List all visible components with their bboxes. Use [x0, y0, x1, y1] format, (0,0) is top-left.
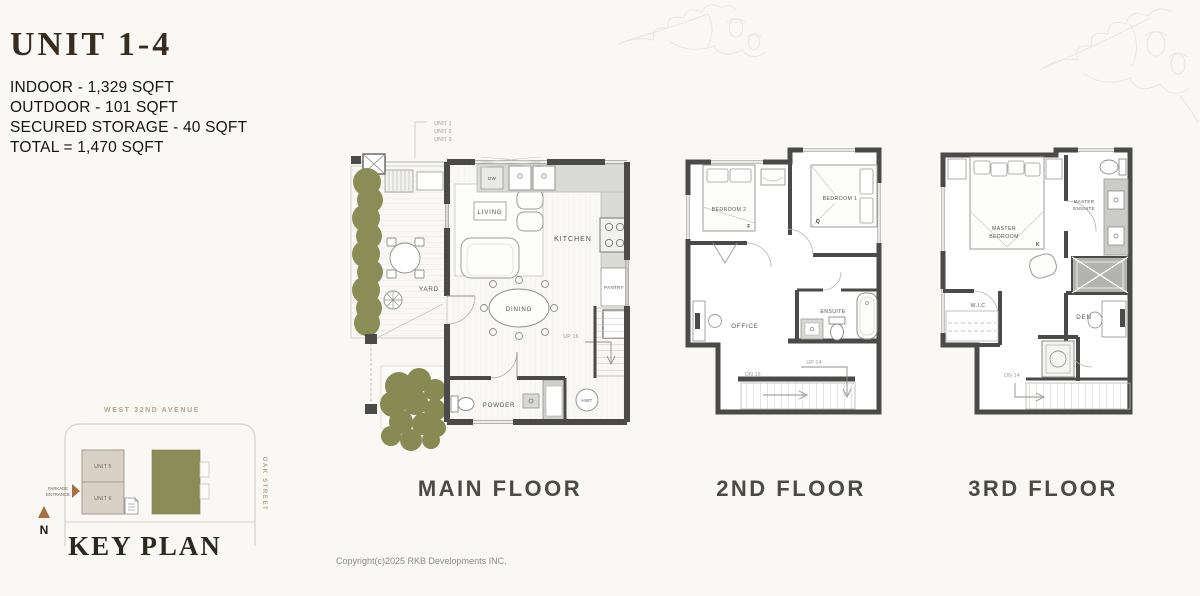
third-floor-label: 3RD FLOOR: [893, 476, 1193, 502]
key-plan-title: KEY PLAN: [50, 531, 240, 562]
stairs-dn-label-2nd: DN 16: [745, 372, 761, 378]
north-indicator: N: [38, 506, 50, 537]
callout-unit1: UNIT 1: [434, 121, 452, 127]
dishwasher-label: DW: [488, 176, 497, 181]
page-title: UNIT 1-4: [10, 26, 172, 64]
storage-closet: [543, 380, 565, 422]
parkade-entrance: PARKADE ENTRANCE: [46, 484, 80, 498]
living-label: LIVING: [477, 209, 502, 216]
master-bed-size: K: [1036, 242, 1040, 248]
main-floor-label: MAIN FLOOR: [350, 476, 650, 502]
laundry-closet: [1042, 341, 1074, 377]
pantry-label: PANTRY: [604, 285, 624, 290]
ensuite-label: ENSUITE: [820, 309, 845, 315]
main-floor-plan: UNIT 1 UNIT 2 UNIT 3: [343, 110, 635, 458]
wic-label: W.I.C: [971, 303, 986, 309]
bedroom1: BEDROOM 1 Q: [811, 165, 877, 227]
yard-area: YARD: [351, 154, 447, 451]
living-room: LIVING: [455, 184, 543, 278]
north-label: N: [40, 523, 49, 537]
unit-callout: UNIT 1 UNIT 2 UNIT 3: [415, 121, 452, 158]
dining-label: DINING: [506, 306, 532, 313]
stairs-up-label: UP 16: [563, 334, 578, 340]
callout-unit3: UNIT 3: [434, 137, 452, 143]
unit5-label: UNIT 5: [94, 464, 112, 470]
kitchen-label: KITCHEN: [554, 236, 592, 243]
oak-leaf-decoration-top: [612, 0, 792, 78]
oak-leaf-decoration-corner: [1030, 0, 1200, 125]
parkade-label-1: PARKADE: [48, 486, 68, 491]
street-top-label: WEST 32ND AVENUE: [104, 407, 200, 414]
stairs-up-label-2nd: UP 14: [806, 360, 821, 366]
floorplan-sheet: UNIT 1-4 INDOOR - 1,329 SQFT OUTDOOR - 1…: [0, 0, 1200, 596]
key-plan-map: WEST 32ND AVENUE UNIT 5 UNIT 6 PARKADE E…: [30, 396, 270, 546]
stat-outdoor: OUTDOOR - 101 SQFT: [10, 99, 178, 117]
master-ensuite-label-2: ENSUITE: [1073, 206, 1095, 211]
office-label: OFFICE: [731, 323, 759, 330]
bed1-size: Q: [816, 219, 820, 225]
stat-indoor: INDOOR - 1,329 SQFT: [10, 79, 174, 97]
tree-symbol: [384, 291, 402, 309]
block-tab-1: [200, 462, 209, 477]
copyright-text: Copyright(c)2025 RKB Developments INC.: [336, 556, 507, 566]
document-icon: [125, 498, 138, 514]
second-floor-plan: BEDROOM 2 F BEDROOM 1 Q OFFICE: [683, 143, 885, 415]
master-ensuite-label-1: MASTER: [1074, 199, 1095, 204]
master-bedroom-label-2: BEDROOM: [989, 234, 1019, 240]
unit6-label: UNIT 6: [94, 496, 112, 502]
callout-unit2: UNIT 2: [434, 129, 452, 135]
north-arrow-icon: [38, 506, 50, 518]
stairs-dn-label-3rd: DN 14: [1004, 373, 1020, 379]
parkade-arrow-icon: [72, 484, 80, 498]
parkade-label-2: ENTRANCE: [46, 492, 70, 497]
hot-water-tank: HWT: [576, 389, 598, 411]
patio-table: [387, 238, 424, 278]
bed2-size: F: [747, 224, 751, 230]
third-floor-plan: MASTER BEDROOM K MASTER ENSUITE W.I.C: [938, 143, 1134, 415]
stat-total: TOTAL = 1,470 SQFT: [10, 139, 164, 157]
garden-bush: [380, 368, 446, 451]
yard-label: YARD: [419, 286, 439, 293]
block-tab-2: [200, 484, 209, 499]
master-bedroom-label-1: MASTER: [992, 226, 1016, 232]
stat-storage: SECURED STORAGE - 40 SQFT: [10, 119, 247, 137]
hwt-label: HWT: [581, 398, 592, 403]
bedroom1-label: BEDROOM 1: [823, 196, 858, 202]
bedroom2-label: BEDROOM 2: [712, 207, 747, 213]
powder-label: POWDER: [483, 402, 516, 409]
street-right-label: OAK STREET: [261, 457, 267, 512]
units-1-4-block: [152, 450, 200, 514]
